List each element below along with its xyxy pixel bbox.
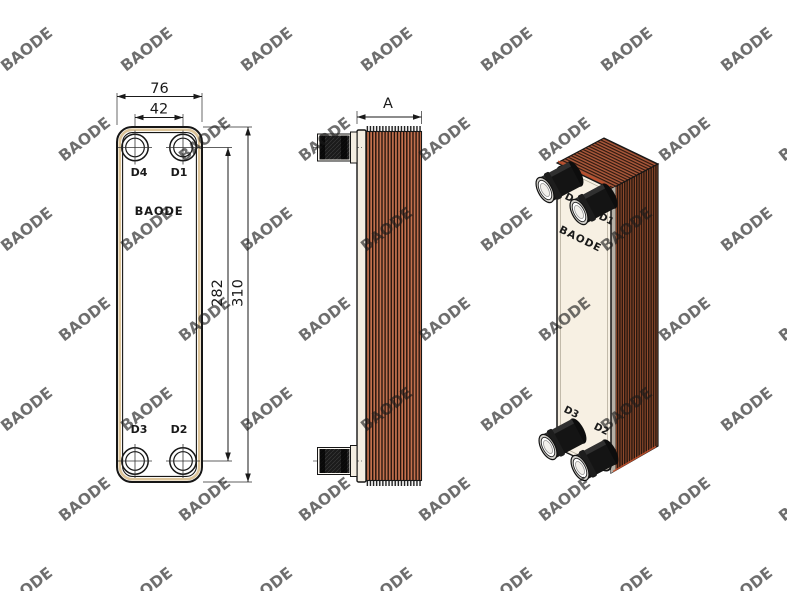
port-flange <box>351 446 358 477</box>
technical-drawing: BAODE BAODE 76 42 282 310 <box>0 0 787 591</box>
port-band <box>341 449 347 473</box>
arrowhead <box>117 94 126 100</box>
arrowhead <box>225 453 231 462</box>
dim-depth: A <box>383 96 393 112</box>
arrowhead <box>194 94 203 100</box>
side-view: A <box>313 96 422 486</box>
port-label-d2: D2 <box>171 423 188 436</box>
arrowhead <box>175 115 184 121</box>
arrowhead <box>245 127 251 136</box>
dim-port-width: 42 <box>150 102 168 118</box>
port-flange <box>351 132 358 163</box>
side-port-bottom <box>313 446 362 477</box>
drawing-canvas: BAODE BAODE 76 42 282 310 <box>0 0 787 591</box>
brand-label-front: BAODE <box>135 204 184 218</box>
plate-teeth-bottom <box>367 481 422 487</box>
dim-overall-width: 76 <box>150 81 168 97</box>
iso-side-face <box>611 164 658 473</box>
plate-stack <box>366 132 422 481</box>
arrowhead <box>245 474 251 483</box>
port-band <box>320 136 326 160</box>
edge-plate <box>357 130 366 482</box>
port-band <box>341 136 347 160</box>
front-view: 76 42 282 310 <box>117 81 252 482</box>
port-label-d4: D4 <box>131 166 148 179</box>
port-band <box>320 449 326 473</box>
arrowhead <box>357 114 366 120</box>
dim-port-height: 282 <box>210 279 226 307</box>
side-port-top <box>313 132 362 163</box>
arrowhead <box>135 115 144 121</box>
iso-view: D4 D1 BAODE D3 D2 <box>532 138 658 484</box>
arrowhead <box>413 114 422 120</box>
plate-teeth-top <box>367 126 422 132</box>
arrowhead <box>225 148 231 157</box>
dim-overall-height: 310 <box>231 279 247 307</box>
port-label-d1: D1 <box>171 166 188 179</box>
port-label-d3: D3 <box>131 423 148 436</box>
